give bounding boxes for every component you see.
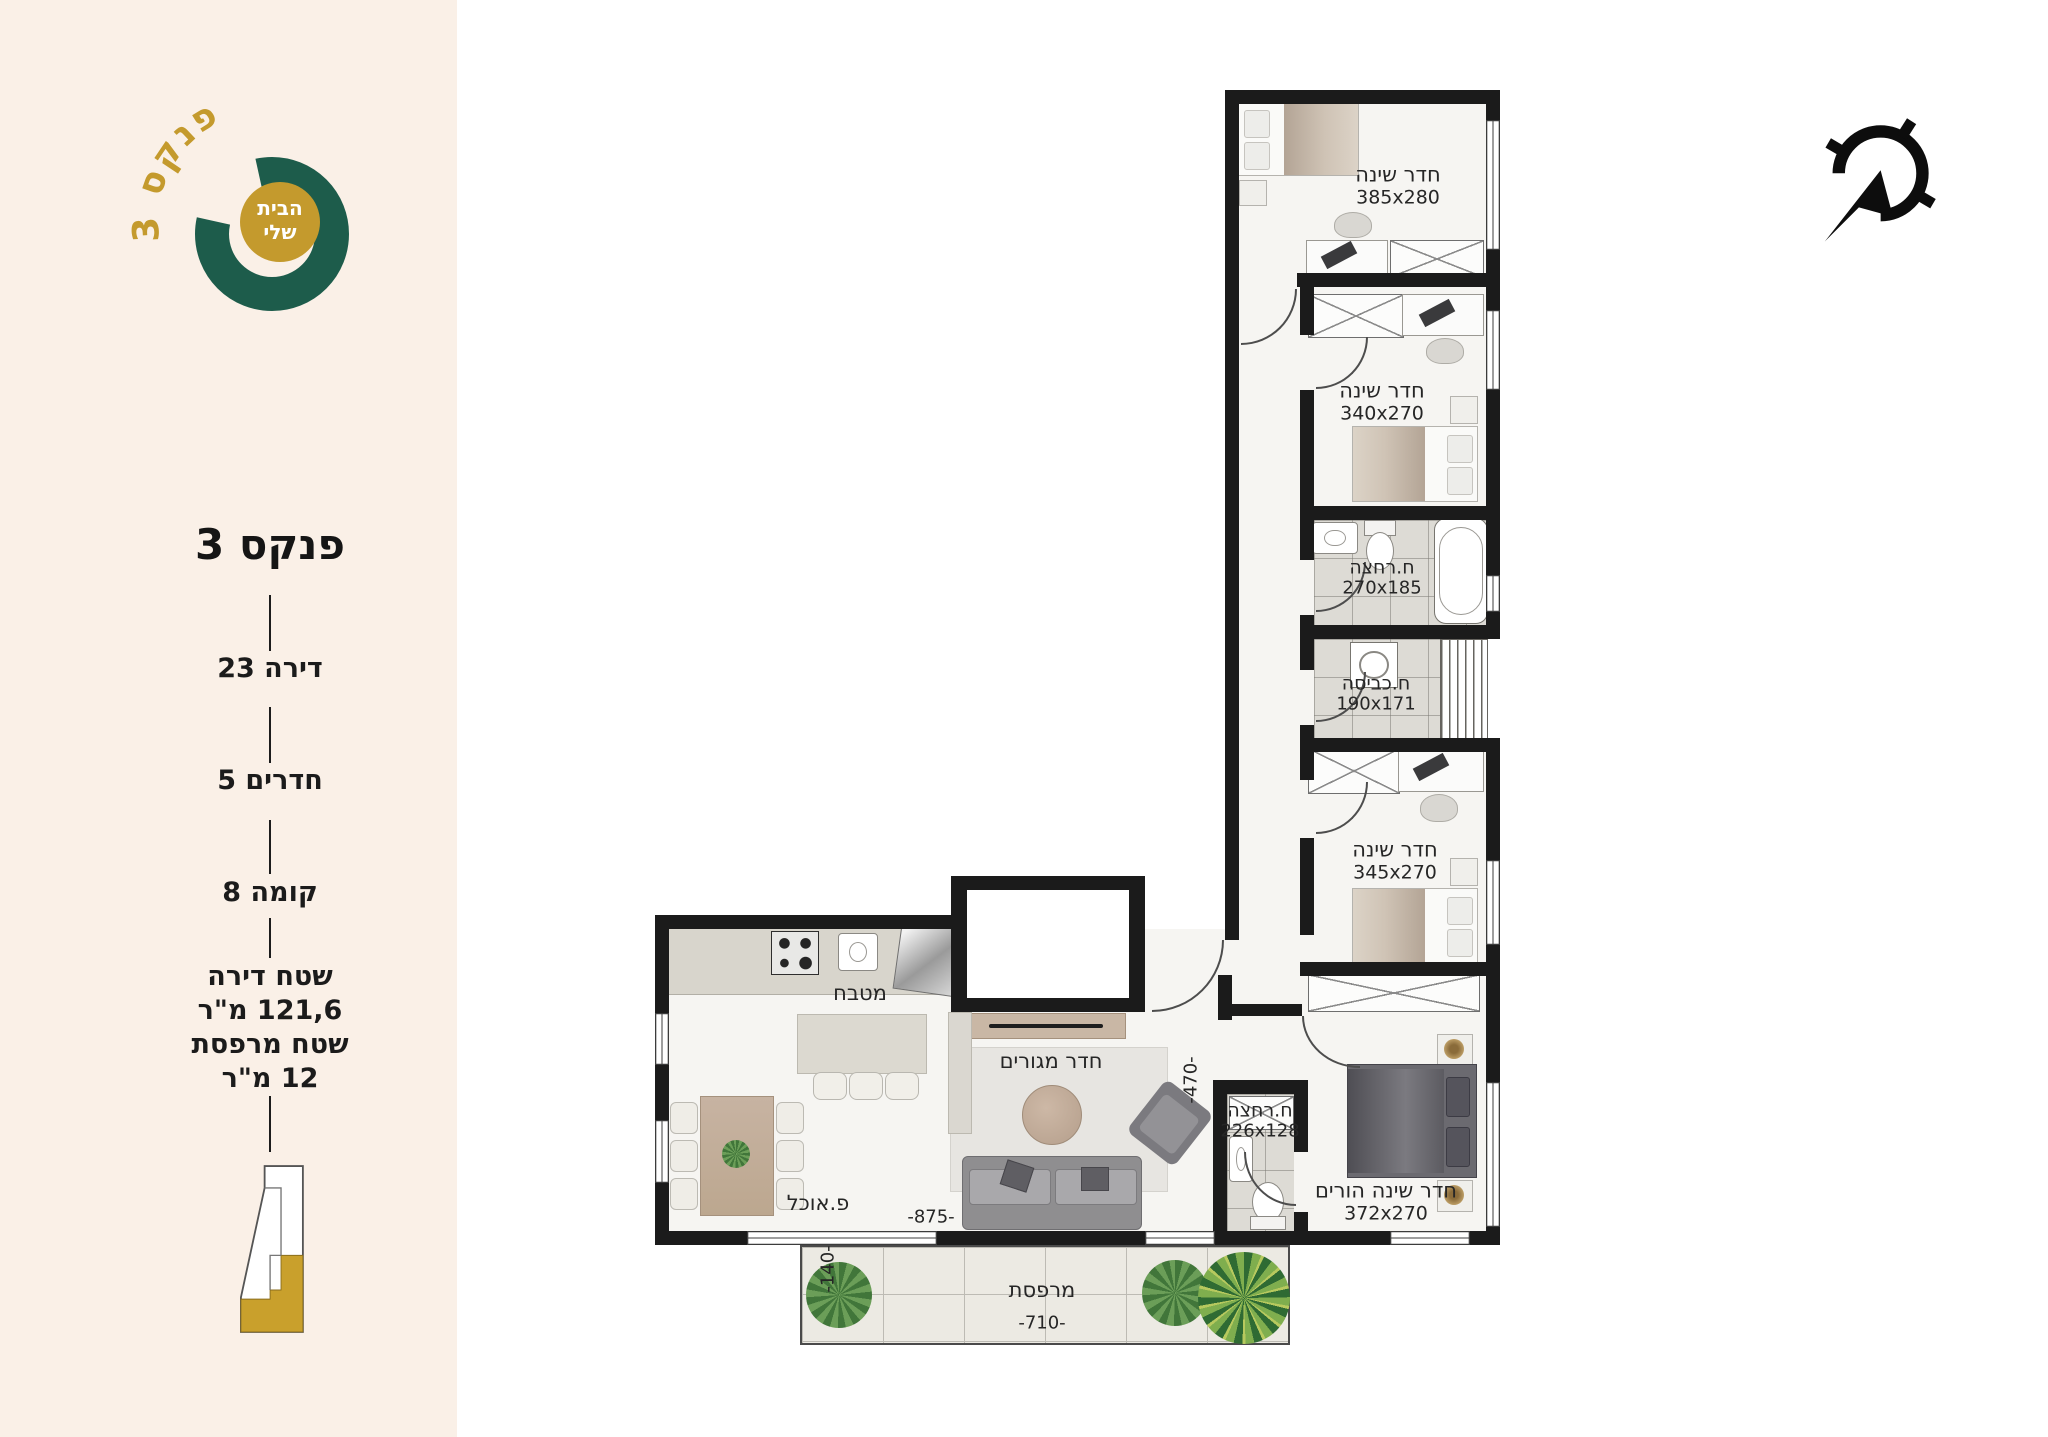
separator <box>269 707 271 763</box>
window <box>1390 1231 1470 1245</box>
apartment-area-value: 121,6 מ"ר <box>90 994 450 1028</box>
window <box>1145 1231 1215 1245</box>
wall <box>1470 1231 1500 1245</box>
stove-icon <box>771 931 819 975</box>
room-label-living-room: חדר מגורים <box>1000 1050 1103 1074</box>
wall <box>1218 975 1232 1020</box>
room-label-kitchen: מטבח <box>833 982 887 1006</box>
wall <box>1225 104 1239 940</box>
window <box>747 1231 937 1245</box>
brand-logo-icon: פנקס 3 הבית שלי <box>120 72 410 352</box>
window <box>655 1120 669 1183</box>
wall <box>655 1231 747 1245</box>
tv-console <box>966 1013 1126 1039</box>
window <box>1486 1082 1500 1227</box>
svg-text:הבית: הבית <box>257 196 303 220</box>
window <box>1486 860 1500 945</box>
wall <box>1486 104 1500 120</box>
wall <box>937 1231 1145 1245</box>
rooms-count: חדרים 5 <box>90 764 450 798</box>
floor-number: קומה 8 <box>90 876 450 910</box>
page-title: פנקס 3 <box>90 520 450 569</box>
window <box>1486 575 1500 612</box>
north-arrow-icon <box>1795 102 1960 257</box>
wall <box>655 1065 669 1120</box>
single-bed <box>1352 888 1478 964</box>
nightstand <box>1239 180 1267 206</box>
separator <box>269 918 271 958</box>
room-label-bedroom: חדר שינה345x270 <box>1352 839 1437 884</box>
wall <box>1300 390 1314 560</box>
tall-cabinet <box>948 1012 972 1134</box>
plant-icon <box>806 1262 872 1328</box>
dimension-label: -470- <box>1181 1056 1202 1103</box>
wall <box>1300 625 1500 639</box>
window <box>1486 310 1500 390</box>
room-label-bathroom: ח.רחצה226x128 <box>1220 1100 1299 1141</box>
table-plant-icon <box>722 1140 750 1168</box>
dining-chair <box>776 1102 804 1134</box>
dimension-label: -140- <box>818 1245 839 1292</box>
wardrobe <box>1308 294 1404 338</box>
wall <box>1300 738 1500 752</box>
sidebar: פנקס 3 הבית שלי פנקס 3 דירה 23 חדרים 5 ק… <box>0 0 457 1437</box>
dimension-label: -710- <box>1018 1313 1065 1334</box>
room-label-bedroom: חדר שינה340x270 <box>1339 380 1424 425</box>
nightstand <box>1450 396 1478 424</box>
dining-chair <box>670 1178 698 1210</box>
room-label-balcony: מרפסת <box>1009 1279 1076 1303</box>
nightstand <box>1450 858 1478 886</box>
wall <box>1225 90 1500 104</box>
brochure-page: פנקס 3 הבית שלי פנקס 3 דירה 23 חדרים 5 ק… <box>0 0 2048 1437</box>
stool <box>813 1072 847 1100</box>
wardrobe <box>1308 974 1480 1012</box>
toilet-tank <box>1250 1216 1286 1230</box>
parents-double-bed <box>1347 1064 1477 1178</box>
bathtub <box>1434 518 1488 624</box>
stool <box>849 1072 883 1100</box>
room-label-parents-bedroom: חדר שינה הורים372x270 <box>1315 1180 1457 1225</box>
desk-chair <box>1426 338 1464 364</box>
wall <box>1300 287 1314 335</box>
laundry-drying-screen <box>1440 639 1488 740</box>
dining-chair <box>670 1140 698 1172</box>
wall <box>655 915 955 929</box>
wall <box>1297 273 1500 287</box>
desk-chair <box>1334 212 1372 238</box>
room-label-laundry: ח.כביסה190x171 <box>1336 673 1415 714</box>
balcony-area: שטח מרפסת 12 מ"ר <box>90 1028 450 1096</box>
dimension-label: -875- <box>907 1207 954 1228</box>
dining-chair <box>670 1102 698 1134</box>
balcony-area-value: 12 מ"ר <box>90 1062 450 1096</box>
wall <box>1300 962 1500 976</box>
separator <box>269 820 271 874</box>
window <box>1486 120 1500 250</box>
wall <box>655 915 669 1013</box>
kitchen-sink <box>838 933 878 971</box>
room-label-bathroom: ח.רחצה270x185 <box>1342 557 1421 598</box>
kitchen-island <box>797 1014 927 1074</box>
wall <box>1215 1231 1390 1245</box>
wall <box>1232 1004 1302 1016</box>
apartment-area: שטח דירה 121,6 מ"ר <box>90 960 450 1028</box>
apartment-number: דירה 23 <box>90 652 450 686</box>
wall <box>1300 725 1314 780</box>
single-bed <box>1352 426 1478 502</box>
separator <box>269 595 271 651</box>
wall <box>1486 738 1500 860</box>
desk-chair <box>1420 794 1458 822</box>
coffee-table <box>1022 1085 1082 1145</box>
lamp-icon <box>1444 1039 1464 1059</box>
double-bed <box>1237 102 1359 176</box>
stool <box>885 1072 919 1100</box>
room-label-bedroom: חדר שינה385x280 <box>1355 164 1440 209</box>
balcony-area-label: שטח מרפסת <box>90 1028 450 1062</box>
stairwell-landing <box>967 890 1129 998</box>
wall <box>1300 838 1314 935</box>
wall <box>1300 506 1500 520</box>
wall <box>1486 390 1500 575</box>
sink <box>1312 522 1358 554</box>
dining-chair <box>776 1140 804 1172</box>
room-label-dining: פ.אוכל <box>787 1192 850 1216</box>
separator <box>269 1096 271 1152</box>
palm-plant-icon <box>1198 1252 1290 1344</box>
window <box>655 1013 669 1065</box>
apartment-area-label: שטח דירה <box>90 960 450 994</box>
building-keyplan-icon <box>230 1158 312 1340</box>
wall <box>1294 1212 1308 1231</box>
wall <box>1300 615 1314 670</box>
svg-text:שלי: שלי <box>263 220 296 244</box>
sofa <box>962 1156 1142 1230</box>
